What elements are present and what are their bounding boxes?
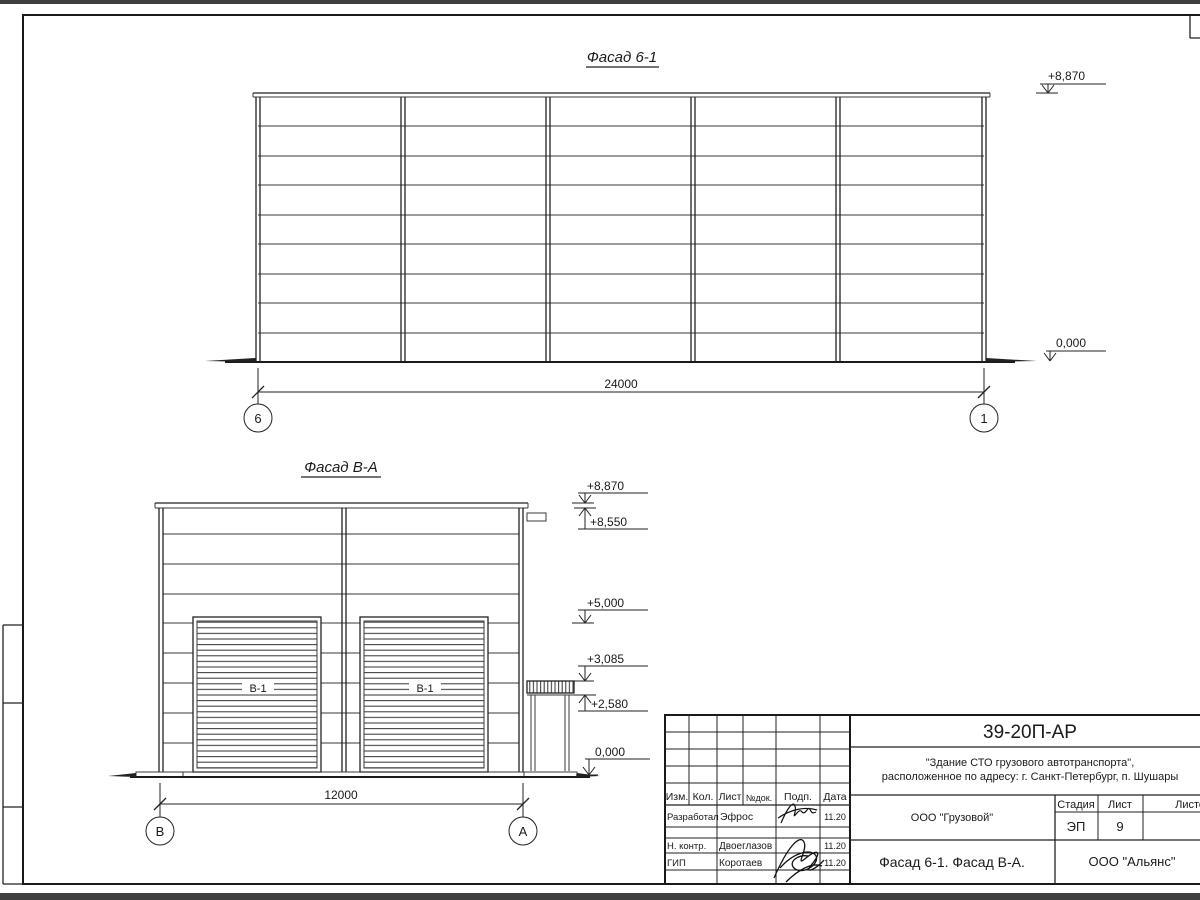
elevation-label: +8,870 xyxy=(1048,69,1085,83)
facade-6-1-ground xyxy=(205,358,1037,362)
row-role: Н. контр. xyxy=(667,841,706,852)
doc-number: 39-20П-АР xyxy=(983,722,1077,743)
list-label: Лист xyxy=(1108,799,1132,811)
elevation-mark-5000: +5,000 xyxy=(572,596,648,623)
axis-label: 1 xyxy=(980,411,987,426)
row-name: Эфрос xyxy=(720,811,753,823)
elevation-label: 0,000 xyxy=(1056,336,1086,350)
dimension-12000: 12000 xyxy=(154,783,529,817)
row-name: Двоеглазов xyxy=(719,841,772,852)
col-doc: №док. xyxy=(746,793,772,803)
sheet-number: 9 xyxy=(1116,819,1123,834)
organization: ООО "Альянс" xyxy=(1089,854,1176,869)
elevation-label: +5,000 xyxy=(587,596,624,610)
elevation-label: +3,085 xyxy=(587,652,624,666)
entrance-canopy xyxy=(527,681,574,771)
row-date: 11.20 xyxy=(824,841,846,851)
elevation-mark-2580: +2,580 xyxy=(574,695,648,711)
row-date: 11.20 xyxy=(824,812,846,822)
stage-value: ЭП xyxy=(1067,819,1086,834)
elevation-mark-3085: +3,085 xyxy=(572,652,648,681)
signature-efros xyxy=(778,804,817,823)
stage-label: Стадия xyxy=(1057,799,1095,811)
drawing-canvas: Фасад 6-1 +8,870 xyxy=(0,0,1200,900)
col-data: Дата xyxy=(823,791,846,803)
elevation-mark-top: +8,870 xyxy=(1036,69,1106,93)
project-title-line2: расположенное по адресу: г. Санкт-Петерб… xyxy=(882,771,1179,783)
facade-v-a: Фасад В-А В-1 В-1 xyxy=(108,459,650,845)
facade-v-a-title: Фасад В-А xyxy=(304,459,378,476)
elevation-mark-8550: +8,550 xyxy=(574,508,648,529)
project-title-line1: "Здание СТО грузового автотранспорта", xyxy=(926,757,1135,769)
facade-6-1-title: Фасад 6-1 xyxy=(587,49,657,66)
axis-label: В xyxy=(156,824,165,839)
facade-6-1-columns xyxy=(256,97,986,362)
row-role: Разработал xyxy=(667,812,719,823)
elevation-label: 0,000 xyxy=(595,745,625,759)
axis-bubble-6: 6 xyxy=(244,404,272,432)
drawing-sheet: { "drawing": { "facade61": { "title": "Ф… xyxy=(0,0,1200,900)
company: ООО "Грузовой" xyxy=(911,812,993,824)
door-label: В-1 xyxy=(249,683,266,695)
elevation-mark-8870: +8,870 xyxy=(572,479,648,503)
elevation-mark-0: 0,000 xyxy=(576,745,650,775)
row-date: 11.20 xyxy=(824,858,846,868)
col-podp: Подп. xyxy=(784,791,812,803)
axis-bubble-v: В xyxy=(146,817,174,845)
signature-dvoeglazov-korotaev xyxy=(774,840,824,882)
row-role: ГИП xyxy=(667,858,686,869)
row-name: Коротаев xyxy=(719,858,762,869)
roller-door-right: В-1 xyxy=(360,617,488,772)
elevation-marks: +8,870 +8,550 +5,000 +3,085 xyxy=(572,479,650,775)
col-izm: Изм. xyxy=(666,791,689,803)
elevation-mark-zero: 0,000 xyxy=(1044,336,1106,361)
col-kol: Кол. xyxy=(693,791,714,803)
axis-bubble-a: А xyxy=(509,817,537,845)
listov-label: Листов xyxy=(1175,799,1200,811)
facade-v-a-ground xyxy=(108,772,600,777)
axis-label: А xyxy=(519,824,528,839)
drawing-title: Фасад 6-1. Фасад В-А. xyxy=(879,854,1025,870)
elevation-label: +8,870 xyxy=(587,479,624,493)
facade-6-1-panel-lines xyxy=(258,126,984,333)
elevation-label: +2,580 xyxy=(591,697,628,711)
axis-label: 6 xyxy=(254,411,261,426)
dimension-24000: 24000 xyxy=(252,368,990,404)
dimension-label: 24000 xyxy=(604,377,638,391)
facade-6-1: Фасад 6-1 +8,870 xyxy=(205,49,1106,432)
roller-door-left: В-1 xyxy=(193,617,321,772)
title-block: Изм. Кол. Лист №док. Подп. Дата Разработ… xyxy=(665,715,1200,884)
col-list: Лист xyxy=(719,791,742,803)
elevation-label: +8,550 xyxy=(590,515,627,529)
dimension-label: 12000 xyxy=(324,788,358,802)
door-label: В-1 xyxy=(416,683,433,695)
axis-bubble-1: 1 xyxy=(970,404,998,432)
